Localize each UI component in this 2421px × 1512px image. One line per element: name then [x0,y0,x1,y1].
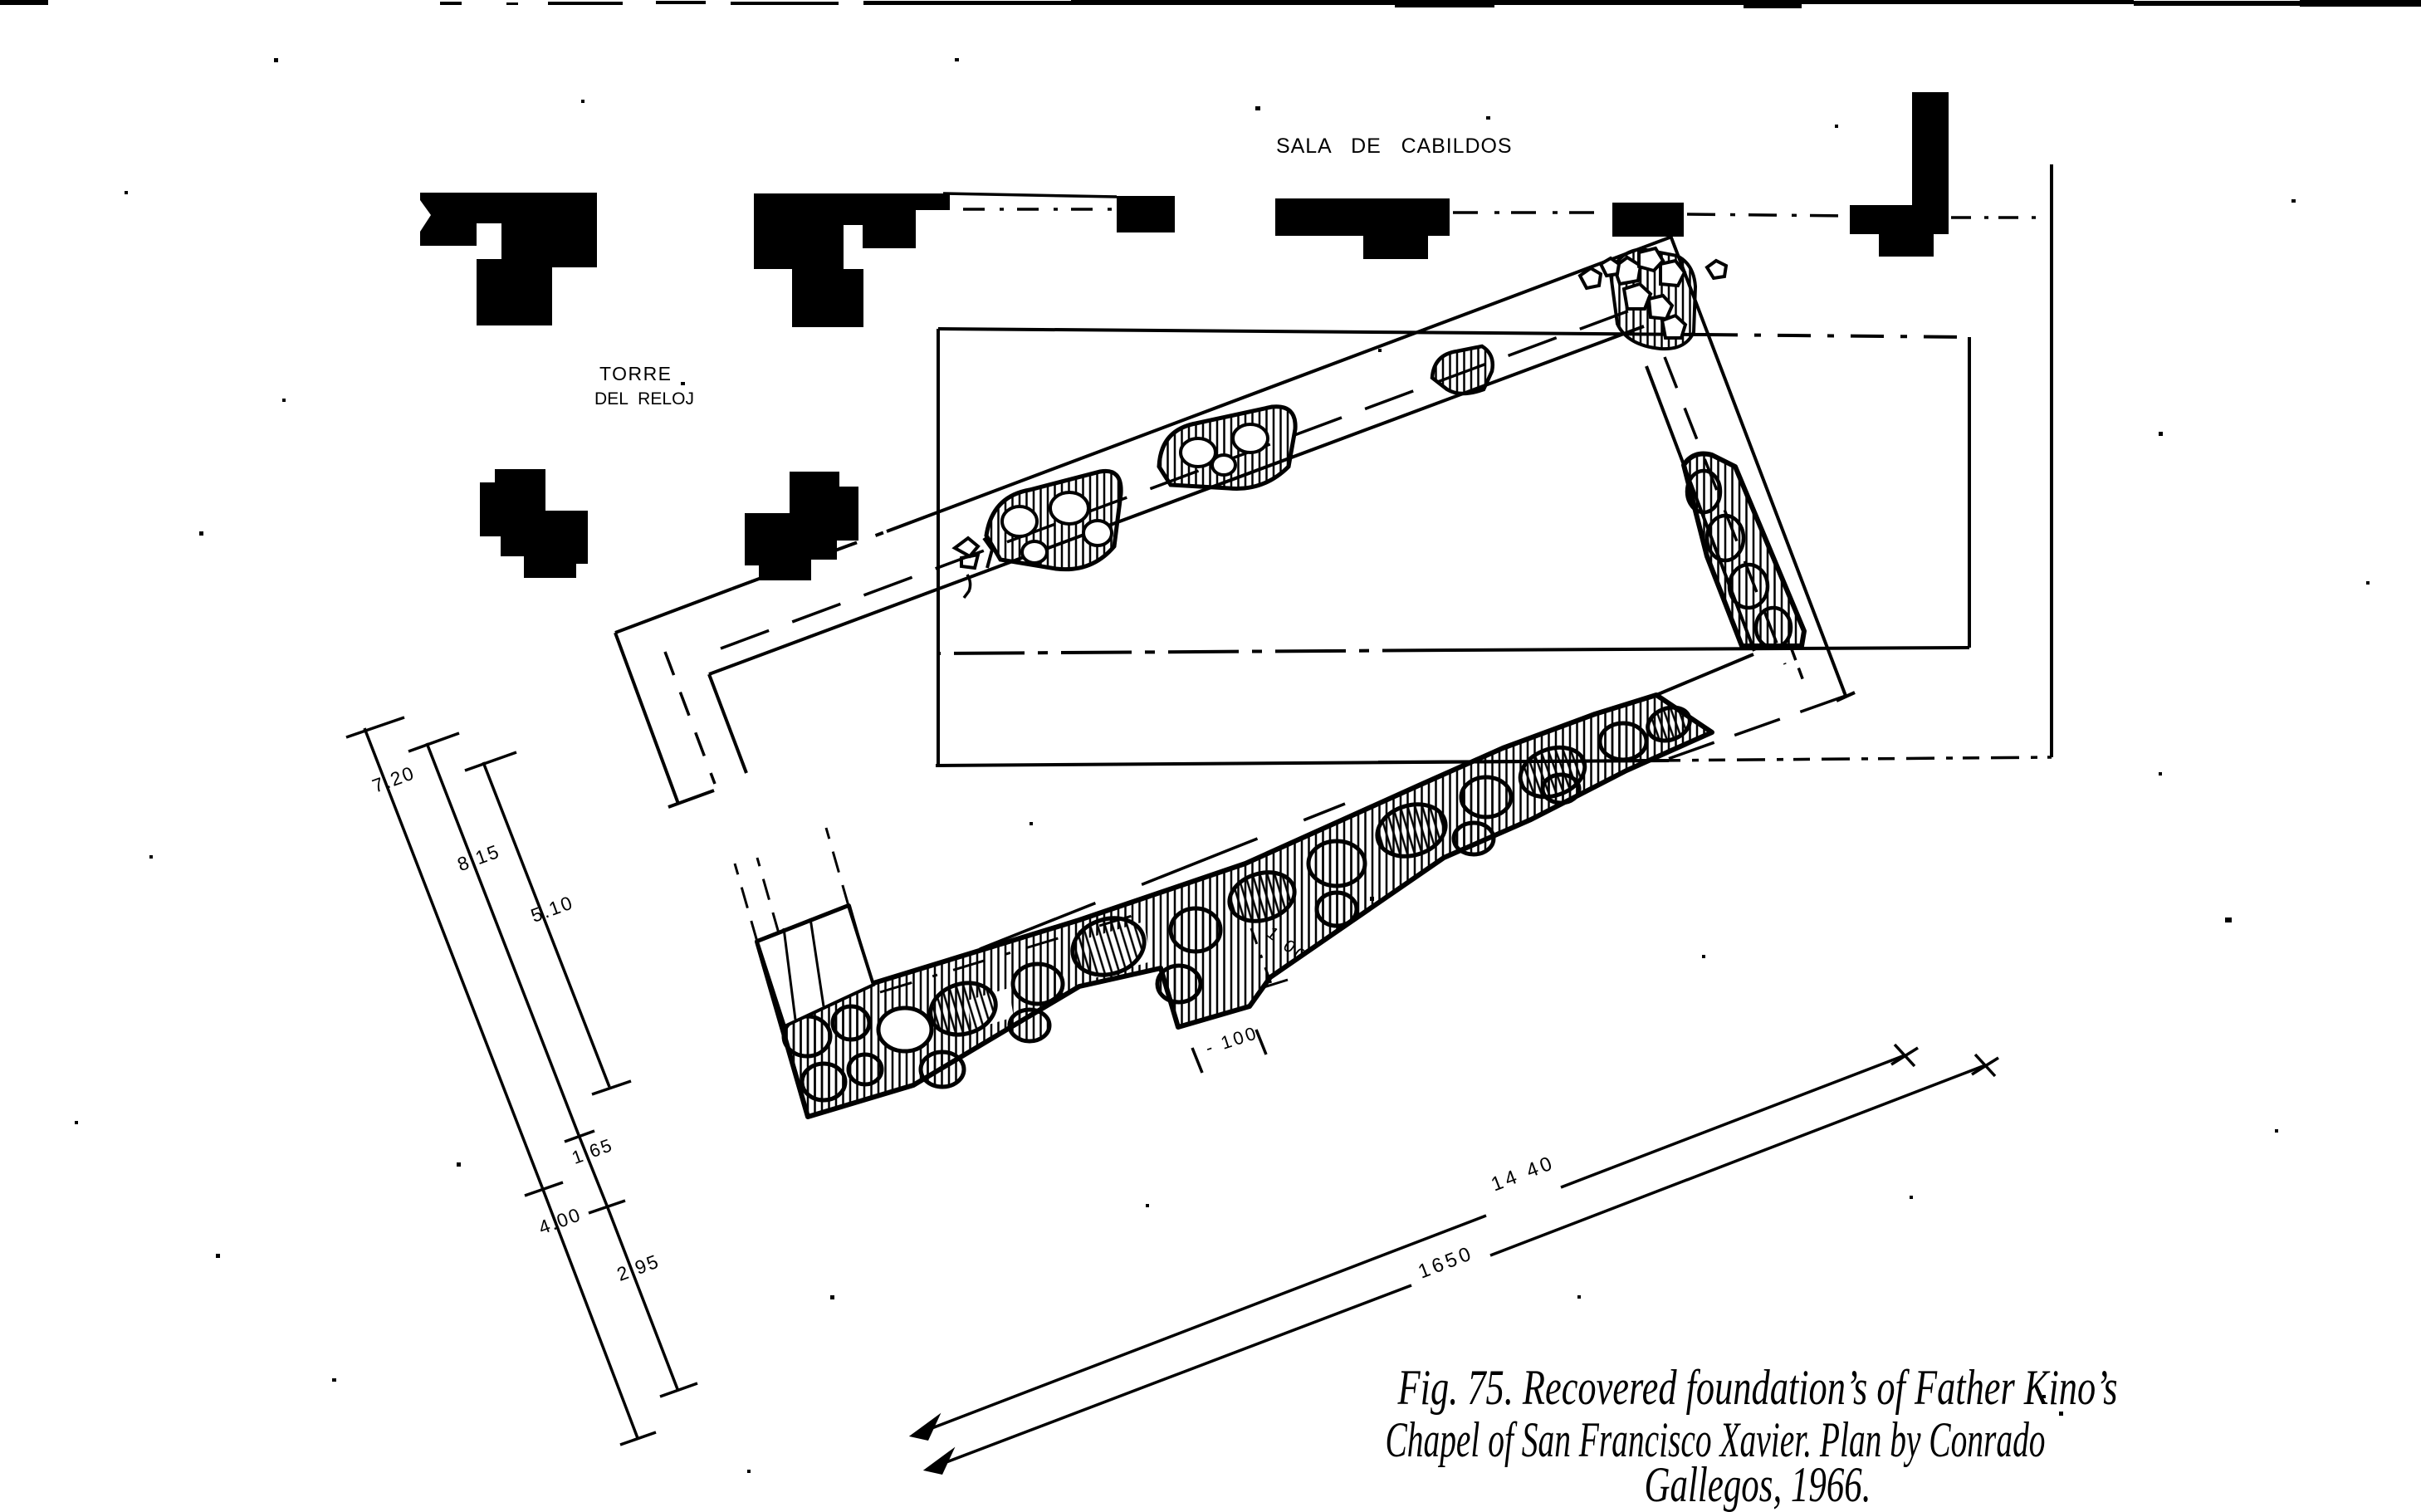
svg-text:14 40: 14 40 [1488,1152,1558,1196]
svg-text:TORRE: TORRE [599,363,676,384]
svg-text:Gallegos, 1966.: Gallegos, 1966. [1645,1457,1871,1512]
svg-text:1650: 1650 [1415,1242,1476,1284]
svg-text:1.65: 1.65 [569,1134,615,1168]
svg-text:- 100: - 100 [1203,1022,1261,1059]
svg-text:Fig. 75. Recovered foundation’: Fig. 75. Recovered foundation’s of Fathe… [1397,1360,2118,1415]
svg-text:7.20: 7.20 [369,761,418,796]
svg-text:SALA DE CABILDOS: SALA DE CABILDOS [1276,135,1515,158]
svg-text:8.15: 8.15 [454,840,502,875]
svg-text:2.95: 2.95 [614,1250,662,1284]
svg-text:DEL RELOJ: DEL RELOJ [594,389,696,409]
